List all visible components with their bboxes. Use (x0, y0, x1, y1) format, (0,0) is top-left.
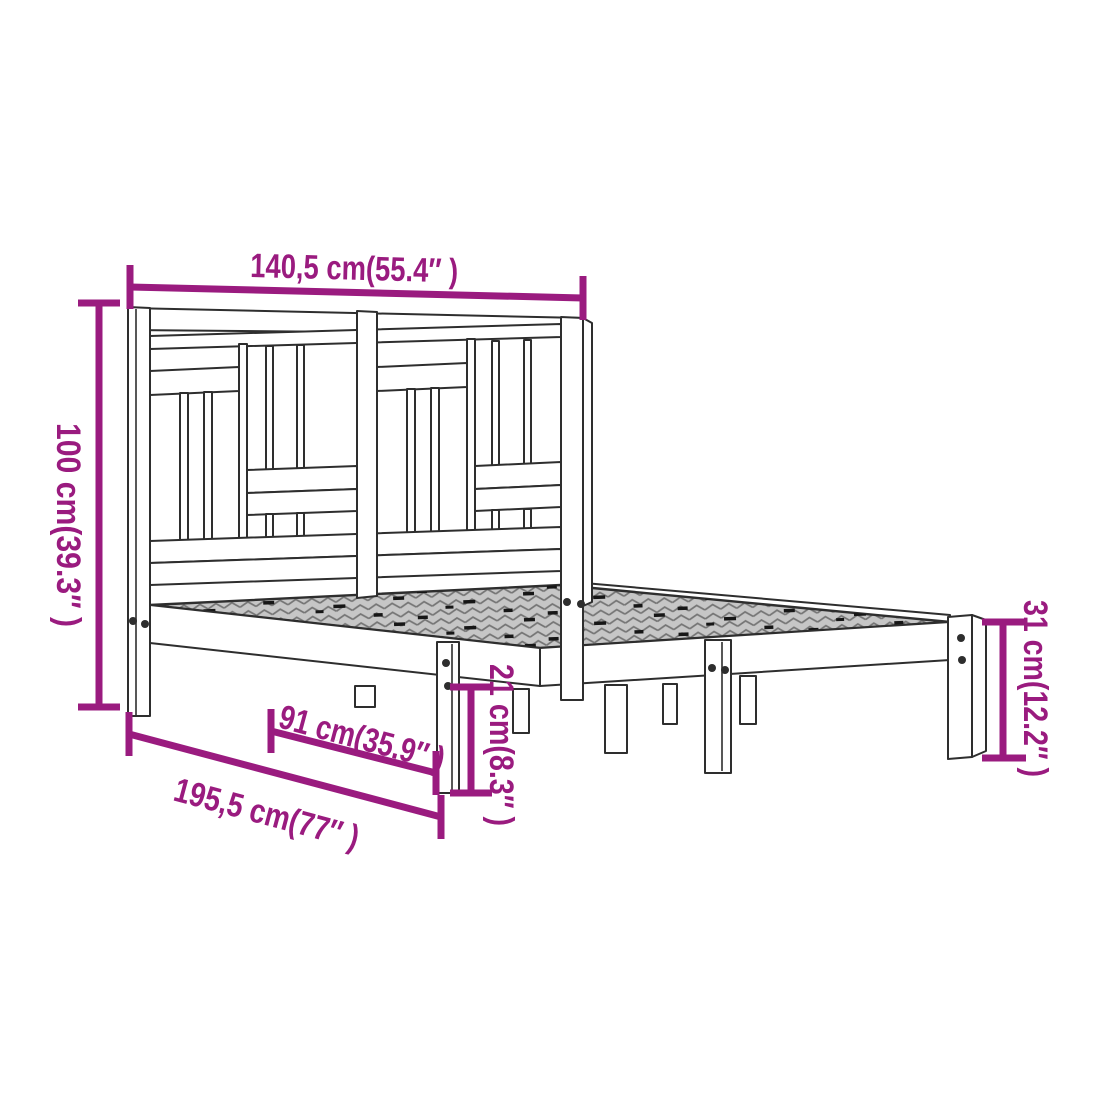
corner-leg-side (972, 615, 986, 757)
dimension-frame-length-label: 195,5 cm(77″ ) (170, 771, 363, 857)
bed-frame-drawing (128, 307, 986, 793)
headboard-divider (239, 344, 247, 542)
screw-dot (958, 656, 966, 664)
dimension-platform-height: 31 cm(12.2″ ) (982, 600, 1054, 777)
headboard-slat (377, 363, 467, 391)
dimension-width-label: 140,5 cm(55.4″ ) (250, 247, 459, 290)
dimension-headboard-height-label: 100 cm(39.3″ ) (49, 423, 87, 627)
headboard-slat (150, 367, 239, 395)
headboard-slat (180, 393, 188, 541)
dimension-clearance: 21 cm(8.3″ ) (450, 664, 520, 826)
headboard-slat (492, 341, 499, 467)
headboard-slat (407, 389, 415, 537)
headboard-right-leg-side (583, 318, 592, 606)
support-leg (663, 684, 677, 724)
screw-dot (442, 659, 450, 667)
dimension-platform-height-label: 31 cm(12.2″ ) (1016, 600, 1054, 777)
headboard-slat (524, 340, 531, 466)
headboard-slat (247, 489, 357, 515)
screw-dot (957, 634, 965, 642)
support-leg (605, 685, 627, 753)
mid-leg-foot (705, 640, 731, 773)
headboard-slat (297, 345, 304, 471)
screw-dot (129, 617, 137, 625)
dimension-inner-length-label: 91 cm(35.9″ ) (275, 698, 449, 779)
screw-dot (563, 598, 571, 606)
support-leg (740, 676, 756, 724)
headboard-slat (266, 346, 273, 472)
screw-dot (141, 620, 149, 628)
screw-dot (577, 600, 585, 608)
screw-dot (721, 666, 729, 674)
headboard-left-leg (128, 307, 150, 716)
headboard-slat (431, 388, 439, 536)
dimension-clearance-label: 21 cm(8.3″ ) (482, 664, 520, 826)
headboard-center-post (357, 311, 377, 598)
headboard-right-leg (561, 317, 583, 700)
headboard-slat (475, 485, 561, 511)
headboard-divider (467, 339, 475, 537)
dimension-headboard-height: 100 cm(39.3″ ) (49, 303, 120, 707)
support-leg (355, 686, 375, 707)
headboard-slat (204, 392, 212, 540)
bed-dimension-diagram: 140,5 cm(55.4″ ) 100 cm(39.3″ ) 31 cm(12… (0, 0, 1100, 1100)
screw-dot (708, 664, 716, 672)
dimension-line (130, 287, 583, 298)
